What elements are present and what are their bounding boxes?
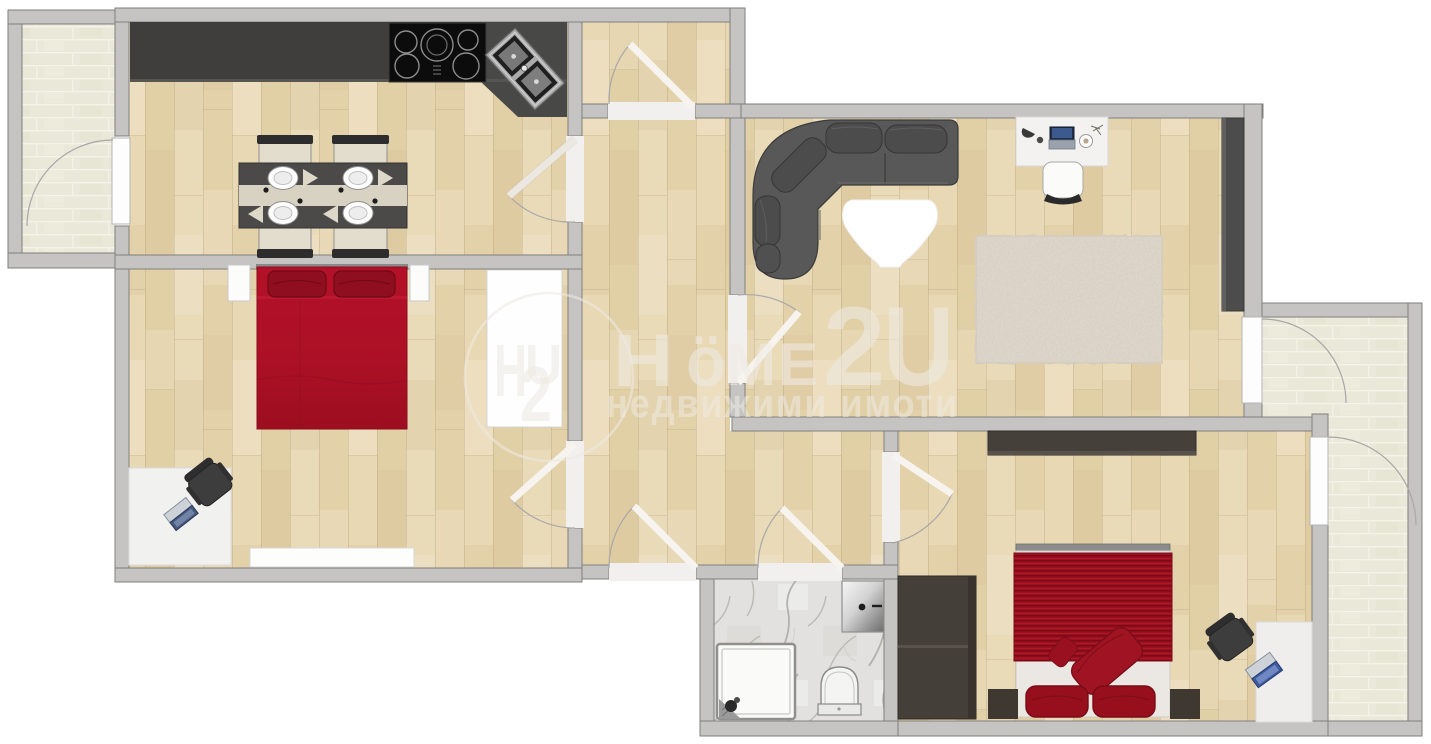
svg-text:U: U — [525, 333, 562, 397]
svg-text:недвижими имоти: недвижими имоти — [606, 382, 959, 426]
